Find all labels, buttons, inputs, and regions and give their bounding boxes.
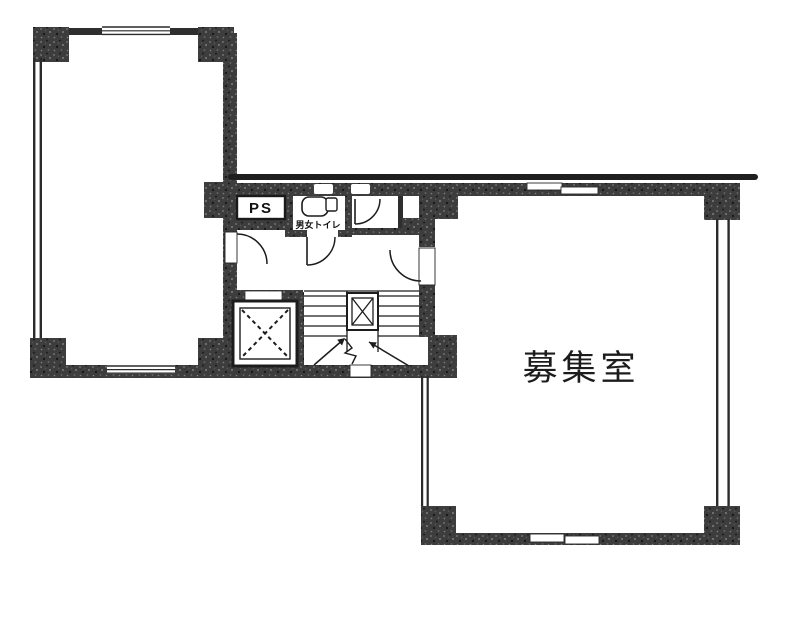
toilet-wall-bottom-a [293, 230, 307, 237]
core-corner-block [428, 335, 457, 377]
pillar-bottom-right [704, 506, 740, 545]
toilet-bowl [302, 197, 328, 216]
core-window-b [351, 184, 370, 194]
pillar-bottom-left [421, 506, 456, 545]
ps-shaft: PS [237, 196, 285, 219]
page-background [0, 0, 787, 626]
window-bottom-west [107, 365, 175, 374]
toilet-label: 男女トイレ [295, 219, 340, 230]
window-top [102, 26, 170, 35]
pillar-top-left [428, 183, 458, 219]
toilet-wall-left [285, 196, 293, 237]
vacant-room-label: 募集室 [522, 349, 639, 388]
core-right-wall-lower [419, 285, 435, 337]
floor-plan-canvas: PS 男女トイレ [0, 0, 787, 626]
stair-bottom-gap [350, 365, 371, 377]
top-wall-bar [228, 183, 740, 196]
pillar-top-right [704, 184, 740, 220]
toilet-wall-bottom-b [338, 230, 352, 237]
core-window-a [314, 184, 333, 194]
washroom-wall-bottom [352, 228, 402, 235]
vacant-door-leaf [419, 248, 435, 285]
toilet-tank [326, 198, 337, 211]
pillar-top-left [33, 27, 69, 62]
elevator [223, 290, 304, 367]
ps-label: PS [249, 200, 273, 217]
floor-plan-svg: PS 男女トイレ [0, 0, 787, 626]
junction-block [204, 182, 237, 218]
sink-niche-wall [402, 218, 419, 235]
hall-door-west-leaf [225, 232, 237, 263]
